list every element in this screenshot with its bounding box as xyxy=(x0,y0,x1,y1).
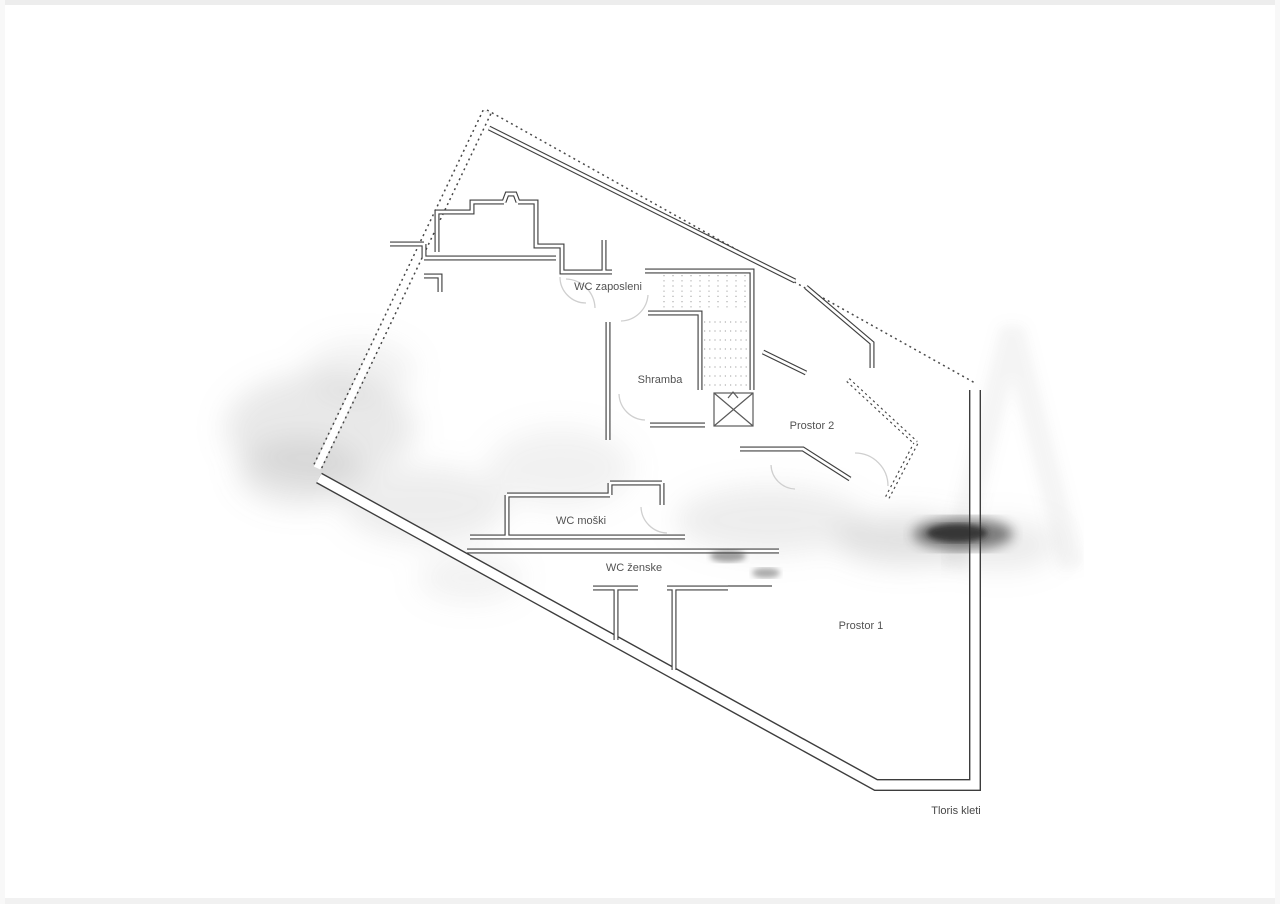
page-edge-left xyxy=(0,0,5,904)
dashed-partition xyxy=(848,380,916,500)
room-label-wc-zenske: WC ženske xyxy=(606,562,662,574)
outer-wall xyxy=(319,390,975,785)
room-label-wc-zaposleni: WC zaposleni xyxy=(574,281,642,293)
room-label-wc-moski: WC moški xyxy=(556,515,606,527)
room-label-prostor-1: Prostor 1 xyxy=(839,620,884,632)
page-edge-right xyxy=(1275,0,1280,904)
page-edge-bottom xyxy=(0,898,1280,904)
floor-plan-canvas: WC zaposleni Shramba Prostor 2 WC moški … xyxy=(0,0,1280,904)
floor-plan-page: WC zaposleni Shramba Prostor 2 WC moški … xyxy=(0,0,1280,904)
plan-caption: Tloris kleti xyxy=(931,805,981,817)
staircase xyxy=(664,275,753,426)
page-edge-top xyxy=(0,0,1280,5)
room-label-shramba: Shramba xyxy=(638,374,684,386)
stair-lower-flight xyxy=(714,392,753,426)
boundary-dashed xyxy=(317,110,975,468)
room-label-prostor-2: Prostor 2 xyxy=(790,420,835,432)
